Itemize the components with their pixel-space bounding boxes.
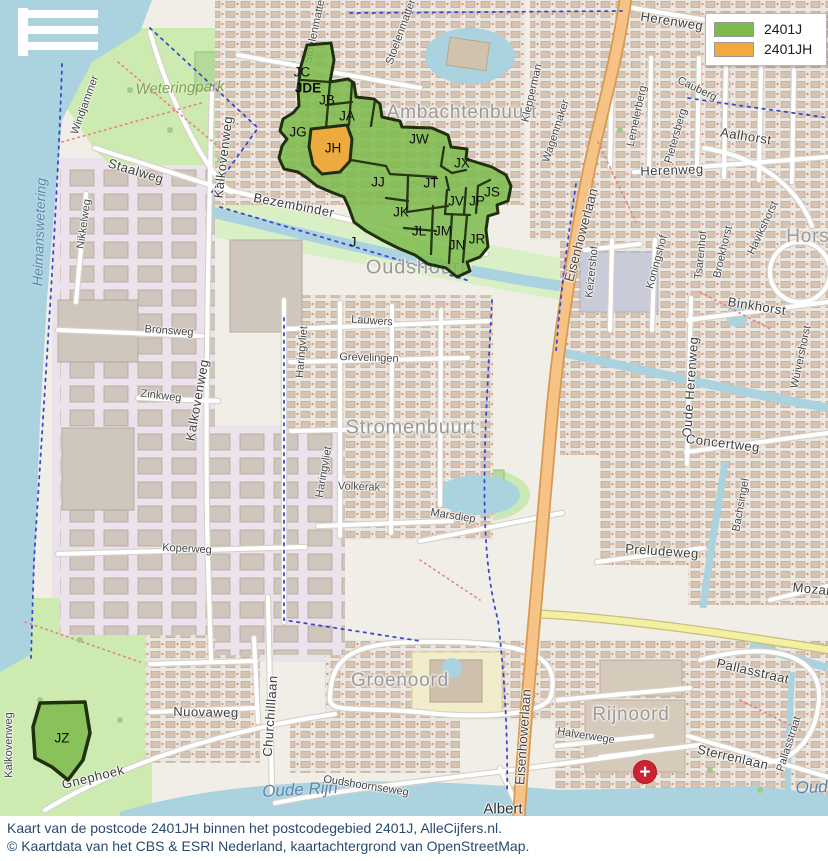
legend-swatch-2401j (714, 22, 754, 37)
legend-row-2401j: 2401J (714, 19, 818, 39)
postcode-area-2401JZ (33, 702, 90, 780)
legend-label-2401jh: 2401JH (764, 41, 812, 57)
caption: Kaart van de postcode 2401JH binnen het … (0, 816, 828, 861)
legend-swatch-2401jh (714, 42, 754, 57)
map-canvas: Ambachtenbuurt Oudshoorn Stromenbuurt Gr… (0, 0, 828, 816)
postcode-overlay (0, 0, 828, 816)
legend-row-2401jh: 2401JH (714, 39, 818, 59)
legend-label-2401j: 2401J (764, 21, 802, 37)
caption-line-1: Kaart van de postcode 2401JH binnen het … (7, 819, 828, 837)
map-legend: 2401J 2401JH (705, 13, 827, 66)
map-screenshot: Ambachtenbuurt Oudshoorn Stromenbuurt Gr… (0, 0, 828, 861)
caption-line-2: © Kaartdata van het CBS & ESRI Nederland… (7, 837, 828, 855)
postcode-area-2401JH (309, 125, 352, 174)
